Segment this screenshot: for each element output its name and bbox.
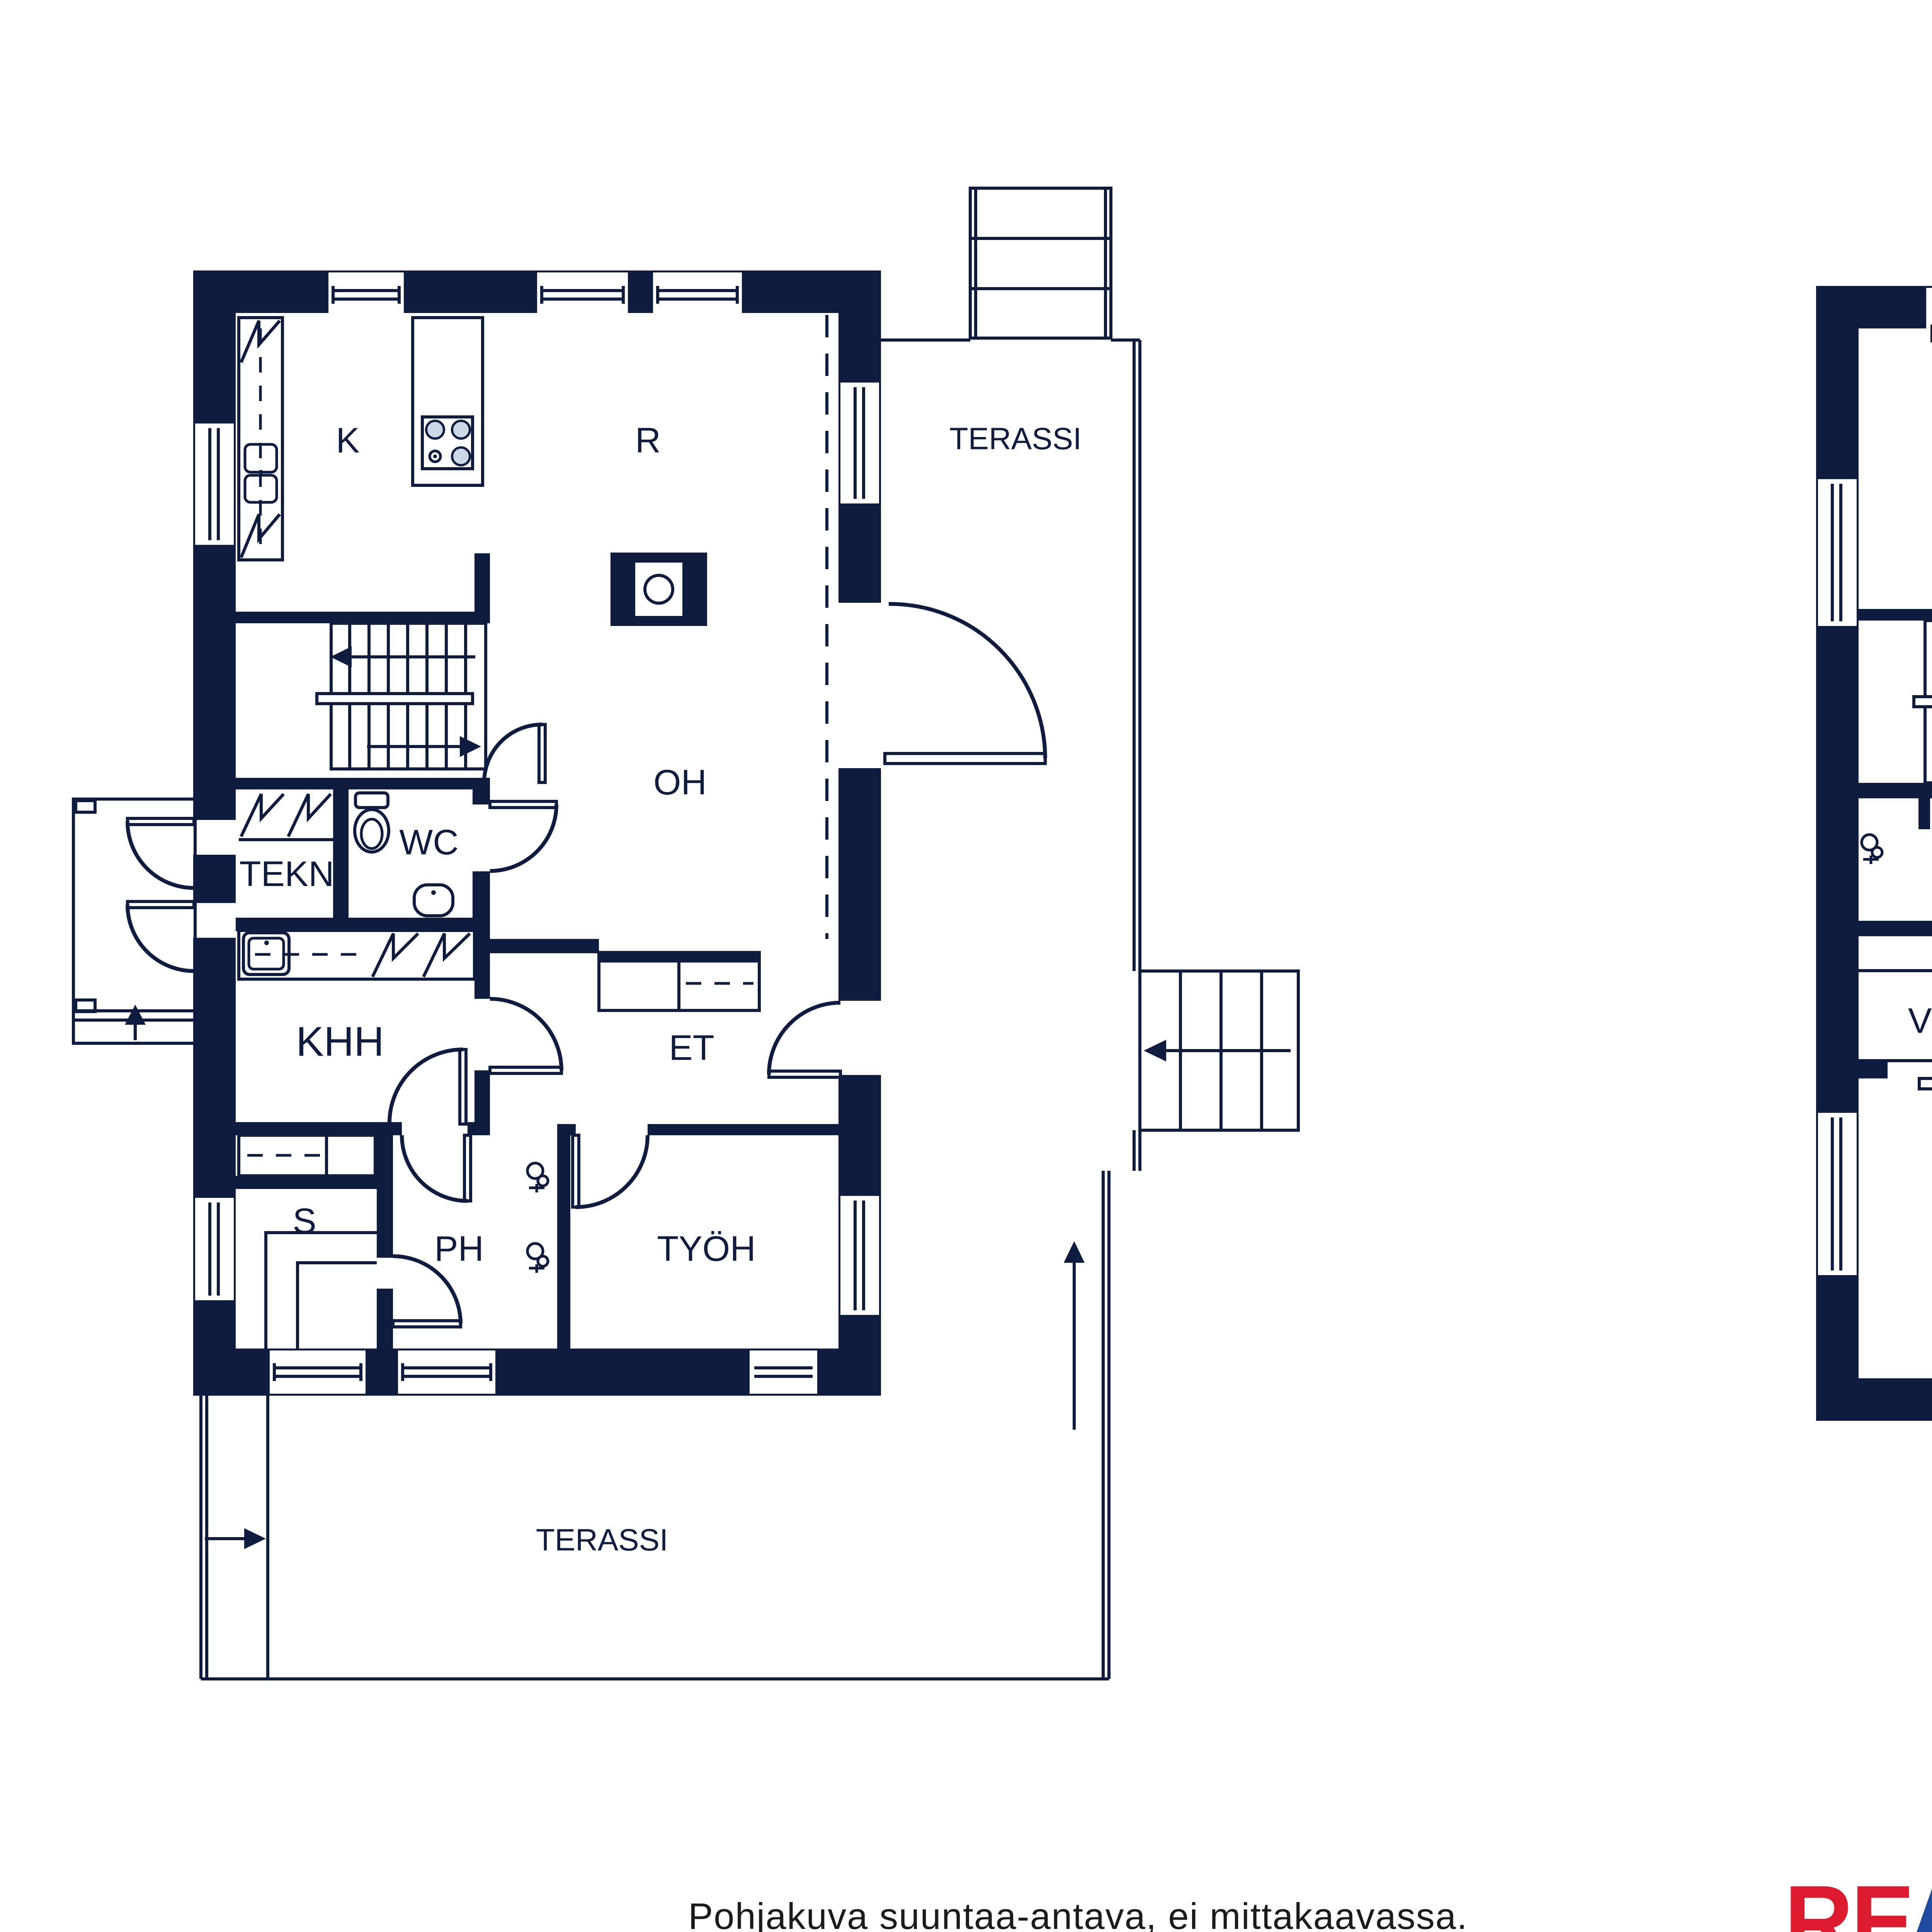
room-label-tekn: TEKN	[239, 854, 334, 894]
room-label-oh: OH	[653, 763, 707, 802]
disclaimer-text: Pohjakuva suuntaa-antava, ei mittakaavas…	[614, 1895, 1542, 1932]
terrace-upper	[881, 188, 1140, 1171]
room-label-vh: VH	[1908, 1001, 1932, 1041]
room-label-tyoh: TYÖH	[657, 1229, 756, 1269]
sink-icon	[414, 885, 453, 916]
room-label-khh: KHH	[296, 1018, 384, 1065]
fireplace-icon	[611, 553, 707, 626]
porch	[73, 799, 195, 1043]
remax-logo: REMAX®	[1784, 1873, 1932, 1932]
terrace-lower	[201, 1171, 1109, 1679]
stairs-ground	[317, 623, 486, 769]
room-label-terassi-top: TERASSI	[949, 422, 1082, 456]
floor-plan-canvas: K R TERASSI OH WC TEKN KHH ET S PH TYÖH …	[0, 0, 1932, 1932]
closet	[599, 952, 759, 1010]
stairs-upper	[1914, 621, 1932, 783]
floor-plan-upper: MH MH AULA KPH VH AUKI ALAS PARVEKE MH M…	[1816, 286, 1932, 1421]
room-label-et: ET	[669, 1028, 714, 1068]
room-label-r: R	[635, 421, 661, 460]
room-label-k: K	[336, 421, 359, 460]
room-label-terassi-bottom: TERASSI	[536, 1523, 668, 1557]
room-label-ph: PH	[434, 1229, 484, 1269]
remax-logo-re: RE	[1784, 1864, 1912, 1932]
room-label-s: S	[293, 1201, 316, 1241]
khh-counter	[239, 930, 474, 979]
door	[128, 604, 1045, 1327]
room-label-wc: WC	[399, 823, 458, 862]
closet	[1919, 1078, 1932, 1089]
stove-icon	[422, 417, 473, 469]
toilet-icon	[355, 793, 389, 852]
floor-plan-ground: K R TERASSI OH WC TEKN KHH ET S PH TYÖH …	[73, 188, 1298, 1679]
kitchen-counter	[239, 318, 483, 560]
entry-steps	[1140, 971, 1298, 1130]
